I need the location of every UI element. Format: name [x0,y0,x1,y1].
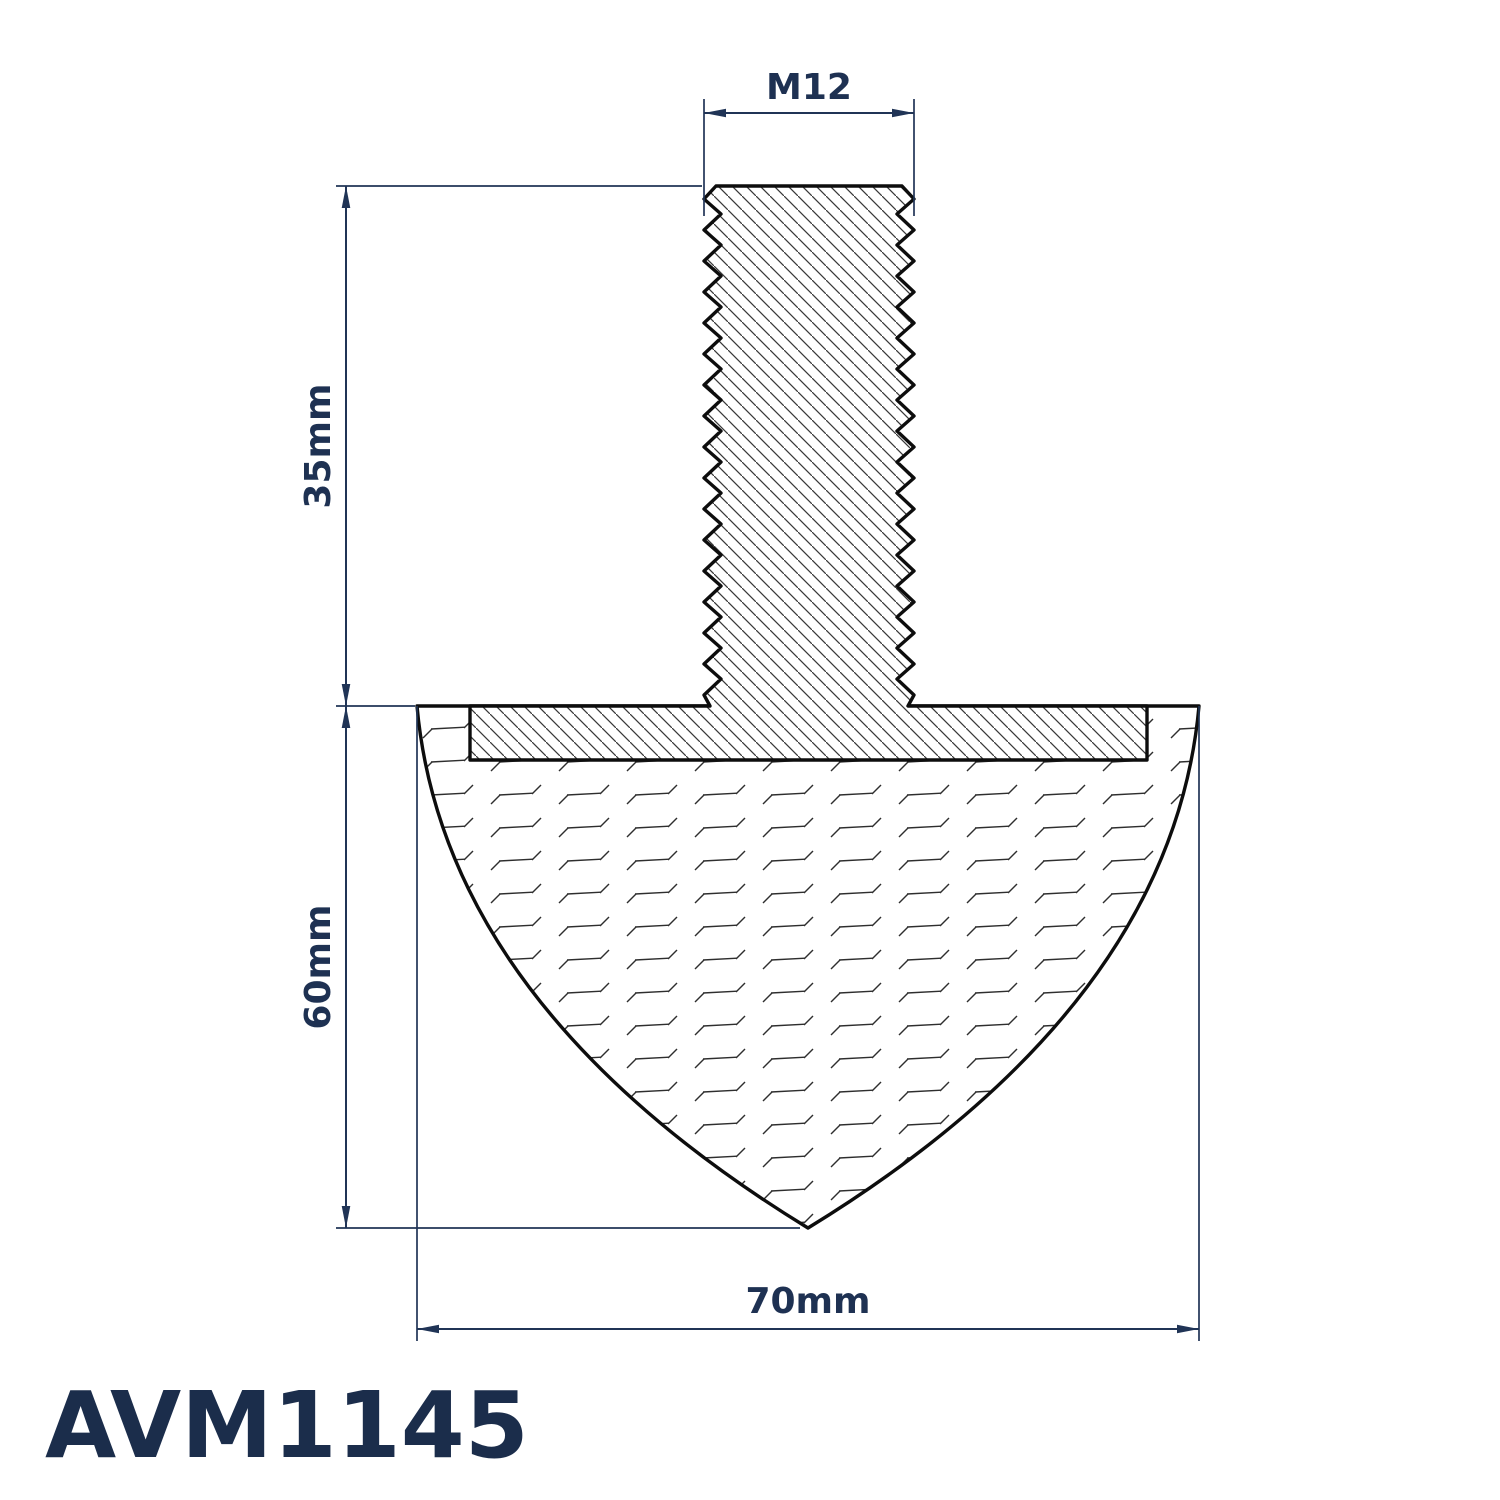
part-number: AVM1145 [45,1372,529,1479]
dim-label-body-height: 60mm [298,904,339,1029]
dim-label-thread: M12 [766,67,852,108]
technical-drawing: M12 35mm 60mm 70mm AVM1145 [0,0,1500,1500]
drawing-sheet: M12 35mm 60mm 70mm AVM1145 [0,0,1500,1500]
dim-label-stud-length: 35mm [298,383,339,508]
dim-label-body-width: 70mm [745,1281,870,1322]
